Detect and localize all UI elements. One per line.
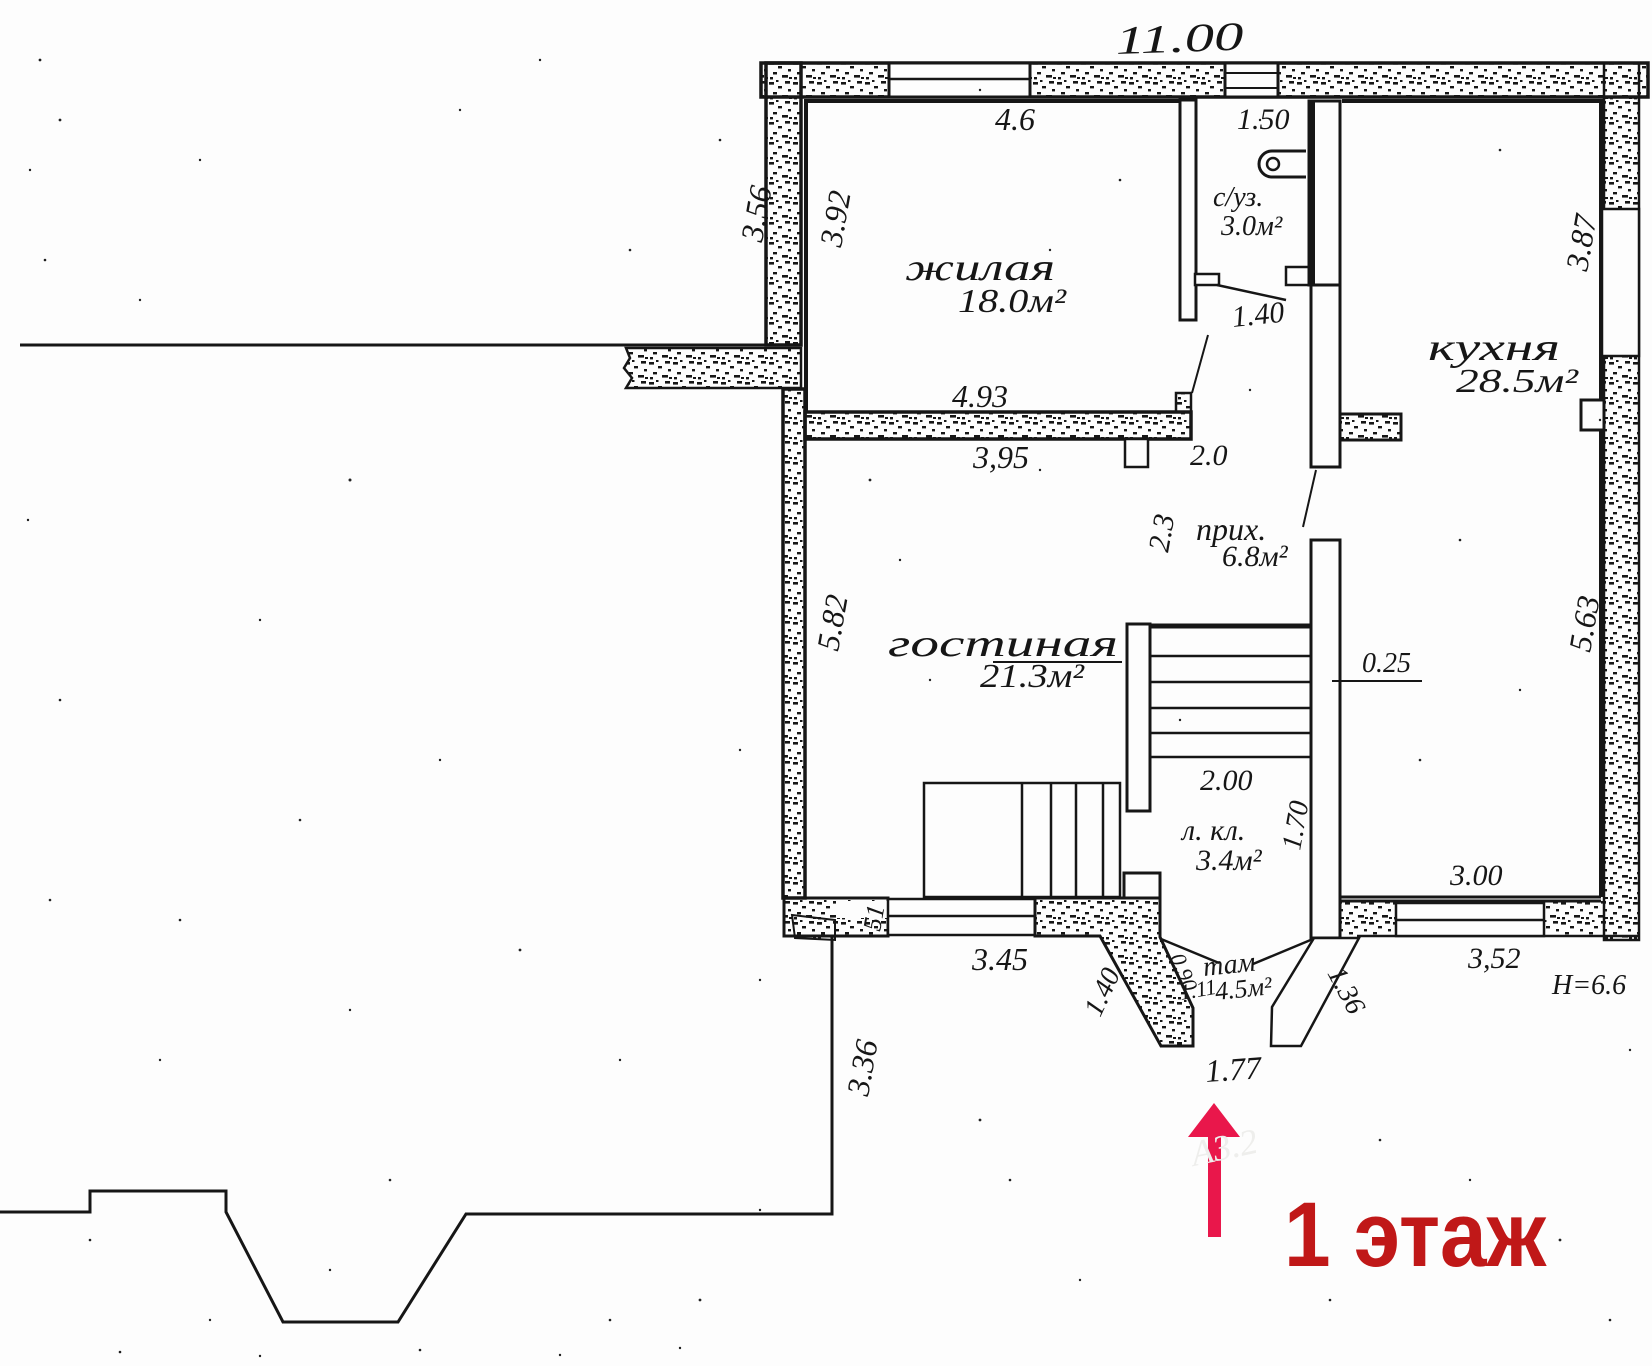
svg-text:0.25: 0.25 bbox=[1362, 648, 1411, 679]
svg-text:2.3: 2.3 bbox=[1142, 512, 1181, 555]
svg-text:18.0м²: 18.0м² bbox=[958, 283, 1067, 320]
svg-text:3,95: 3,95 bbox=[972, 439, 1029, 475]
svg-text:с/уз.: с/уз. bbox=[1213, 182, 1263, 213]
svg-text:2.0: 2.0 bbox=[1190, 439, 1228, 472]
svg-text:11.00: 11.00 bbox=[1115, 14, 1244, 63]
svg-text:4.93: 4.93 bbox=[952, 378, 1008, 414]
svg-text:51: 51 bbox=[857, 902, 890, 933]
svg-text:3.00: 3.00 bbox=[1449, 859, 1503, 892]
svg-text:28.5м²: 28.5м² bbox=[1456, 363, 1579, 400]
svg-text:3.4м²: 3.4м² bbox=[1195, 844, 1263, 877]
svg-text:3.45: 3.45 bbox=[971, 941, 1028, 977]
svg-text:2.00: 2.00 bbox=[1200, 764, 1253, 797]
svg-text:H=6.6: H=6.6 bbox=[1551, 970, 1626, 1001]
svg-text:4.6: 4.6 bbox=[995, 101, 1035, 137]
svg-text:1.77: 1.77 bbox=[1204, 1049, 1264, 1089]
svg-text:3,52: 3,52 bbox=[1467, 942, 1521, 975]
svg-text:6.8м²: 6.8м² bbox=[1222, 540, 1289, 573]
svg-text:1 этаж: 1 этаж bbox=[1284, 1184, 1547, 1286]
svg-text:3.0м²: 3.0м² bbox=[1220, 211, 1283, 242]
svg-text:1.40: 1.40 bbox=[1230, 296, 1286, 334]
svg-text:4.5м²: 4.5м² bbox=[1214, 971, 1275, 1006]
svg-text:л. кл.: л. кл. bbox=[1180, 814, 1245, 847]
svg-text:1.50: 1.50 bbox=[1237, 103, 1290, 136]
svg-text:21.3м²: 21.3м² bbox=[980, 658, 1085, 695]
